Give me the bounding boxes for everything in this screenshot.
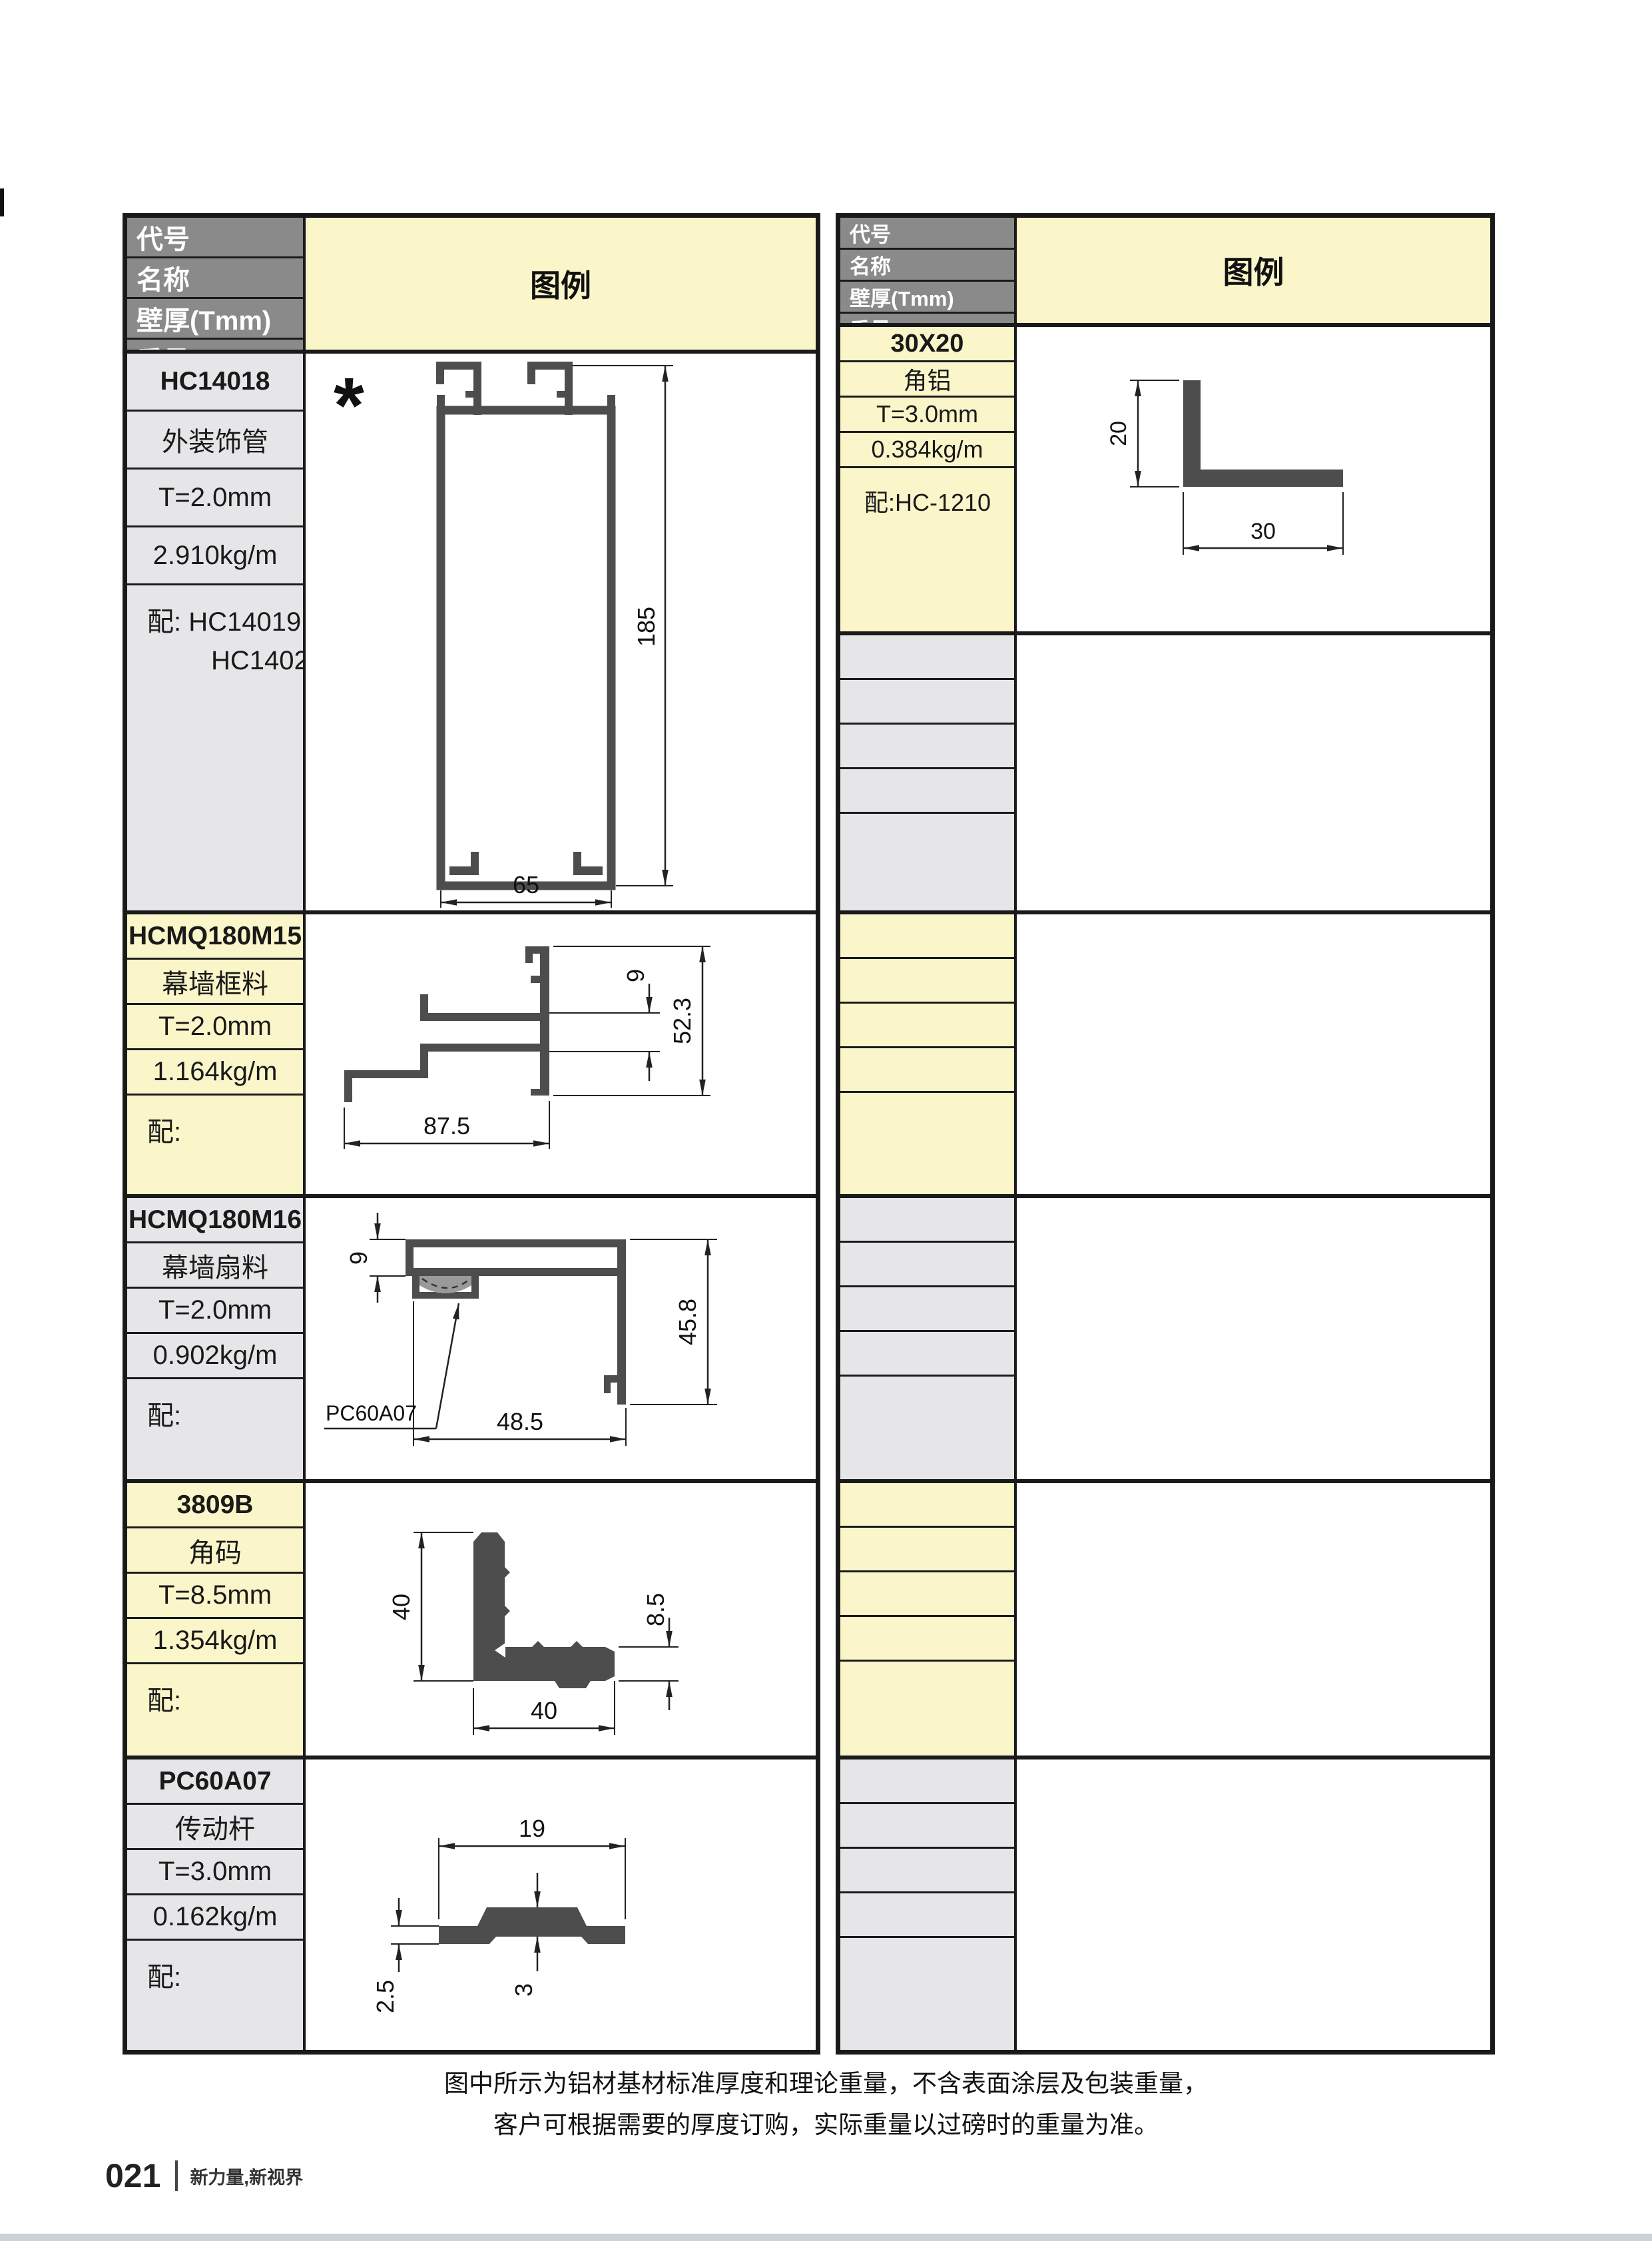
code-cell: HC14018 [127, 354, 303, 412]
code-cell [840, 1760, 1014, 1804]
diagram-cell [1017, 635, 1490, 910]
header-name: 名称 [127, 258, 303, 299]
thickness-cell: T=2.0mm [127, 1005, 303, 1050]
table-row: PC60A07 传动杆 T=3.0mm 0.162kg/m 配: [127, 1756, 816, 2050]
accessory-line: 配: [147, 1113, 181, 1151]
accessory-cell [840, 1938, 1014, 2050]
accessory-cell: 配: [127, 1096, 303, 1194]
name-cell [840, 959, 1014, 1004]
name-cell: 传动杆 [127, 1805, 303, 1850]
code-cell [840, 914, 1014, 959]
dim-label: 2.5 [372, 1980, 399, 2013]
dim-label: 52.3 [669, 998, 696, 1044]
table-row: 30X20 角铝 T=3.0mm 0.384kg/m 配:HC-1210 [840, 323, 1490, 631]
weight-cell: 0.384kg/m [840, 433, 1014, 468]
leader-label: PC60A07 [326, 1401, 417, 1425]
profile-diagram-hc14018: * [306, 354, 813, 910]
diagram-cell: 19 2.5 3 [306, 1760, 816, 2050]
profile-diagram-hcmq180m15: 87.5 52.3 9 [306, 914, 813, 1194]
note-line-2: 客户可根据需要的厚度订购，实际重量以过磅时的重量为准。 [0, 2104, 1652, 2140]
page-footer: 021 新力量,新视界 [105, 2156, 303, 2195]
name-cell [840, 680, 1014, 725]
profile-table-right: 代号 名称 壁厚(Tmm) 重量(kg/m) 配套 图例 30X20 角铝 T=… [836, 213, 1495, 2055]
table-row-empty [840, 1194, 1490, 1479]
diagram-cell [1017, 1198, 1490, 1479]
accessory-line: 配: [147, 1397, 181, 1435]
legend-title: 图例 [530, 262, 591, 306]
diagram-cell [1017, 1760, 1490, 2050]
thickness-cell [840, 1004, 1014, 1048]
code-cell: 3809B [127, 1483, 303, 1528]
diagram-cell: 87.5 52.3 9 [306, 914, 816, 1194]
catalog-page: 代号 名称 壁厚(Tmm) 重量(kg/m) 配套 图例 HC14018 外装饰… [0, 0, 1652, 2241]
table-row: 3809B 角码 T=8.5mm 1.354kg/m 配: [127, 1479, 816, 1756]
dim-label: 48.5 [497, 1408, 543, 1435]
weight-cell: 2.910kg/m [127, 527, 303, 585]
bottom-strip [0, 2234, 1652, 2241]
weight-cell [840, 1332, 1014, 1377]
table-row-empty [840, 631, 1490, 910]
dim-label: 65 [513, 871, 539, 898]
code-cell [840, 1483, 1014, 1528]
thickness-cell [840, 1287, 1014, 1332]
header-code: 代号 [840, 218, 1014, 250]
header-thickness: 壁厚(Tmm) [127, 299, 303, 340]
dim-label: 19 [519, 1815, 545, 1842]
accessory-cell: 配: [127, 1379, 303, 1479]
table-row: HCMQ180M16 幕墙扇料 T=2.0mm 0.902kg/m 配: [127, 1194, 816, 1479]
weight-cell [840, 1893, 1014, 1938]
table-row-empty [840, 910, 1490, 1194]
name-cell [840, 1243, 1014, 1287]
footer-divider [175, 2160, 178, 2191]
legend-title: 图例 [1223, 248, 1284, 292]
weight-cell: 1.164kg/m [127, 1050, 303, 1096]
thickness-cell: T=2.0mm [127, 1289, 303, 1334]
accessory-cell: 配:HC-1210 [840, 468, 1014, 631]
table-row: HCMQ180M15 幕墙框料 T=2.0mm 1.164kg/m 配: [127, 910, 816, 1194]
accessory-cell: 配: [127, 1664, 303, 1756]
accessory-line: 配: HC14019 [147, 603, 301, 641]
code-cell [840, 1198, 1014, 1243]
dim-label: 30 [1250, 519, 1276, 544]
weight-cell [840, 1617, 1014, 1662]
code-cell: PC60A07 [127, 1760, 303, 1805]
dim-label: 40 [388, 1594, 415, 1620]
header-legend-cell: 图例 [306, 218, 816, 350]
code-cell: HCMQ180M16 [127, 1198, 303, 1243]
accessory-line: 配:HC-1210 [864, 485, 991, 520]
code-cell [840, 635, 1014, 680]
accessory-cell [840, 1093, 1014, 1194]
diagram-cell: 40 40 8.5 [306, 1483, 816, 1756]
diagram-cell: 20 30 [1017, 327, 1490, 631]
diagram-cell: 9 45.8 48.5 PC60A07 [306, 1198, 816, 1479]
profile-diagram-30x20: 20 30 [1017, 327, 1488, 631]
dim-label: 8.5 [642, 1593, 669, 1626]
weight-cell: 1.354kg/m [127, 1619, 303, 1664]
name-cell: 幕墙框料 [127, 960, 303, 1005]
thickness-cell [840, 1849, 1014, 1893]
name-cell: 幕墙扇料 [127, 1243, 303, 1289]
thickness-cell: T=3.0mm [127, 1850, 303, 1895]
profile-diagram-3809b: 40 40 8.5 [306, 1483, 813, 1756]
weight-cell: 0.902kg/m [127, 1334, 303, 1379]
name-cell: 角码 [127, 1528, 303, 1574]
name-cell: 角铝 [840, 362, 1014, 398]
table-header: 代号 名称 壁厚(Tmm) 重量(kg/m) 配套 图例 [840, 218, 1490, 323]
thickness-cell [840, 725, 1014, 769]
header-legend-cell: 图例 [1017, 218, 1490, 323]
table-row-empty [840, 1756, 1490, 2050]
dim-label: 3 [510, 1983, 537, 1997]
profile-diagram-hcmq180m16: 9 45.8 48.5 PC60A07 [306, 1198, 813, 1479]
code-cell: 30X20 [840, 327, 1014, 362]
name-cell: 外装饰管 [127, 412, 303, 470]
table-header: 代号 名称 壁厚(Tmm) 重量(kg/m) 配套 图例 [127, 218, 816, 350]
accessory-cell [840, 1662, 1014, 1756]
accessory-cell [840, 814, 1014, 910]
thickness-cell: T=8.5mm [127, 1574, 303, 1619]
name-cell [840, 1528, 1014, 1572]
diagram-cell: * [306, 354, 816, 910]
note-line-1: 图中所示为铝材基材标准厚度和理论重量，不含表面涂层及包装重量， [0, 2063, 1652, 2099]
diagram-cell [1017, 914, 1490, 1194]
header-thickness: 壁厚(Tmm) [840, 282, 1014, 314]
page-number: 021 [105, 2156, 160, 2195]
footer-slogan: 新力量,新视界 [190, 2163, 303, 2189]
accessory-line: 配: [147, 1682, 181, 1720]
name-cell [840, 1804, 1014, 1849]
dim-label: 45.8 [674, 1299, 701, 1345]
table-row: HC14018 外装饰管 T=2.0mm 2.910kg/m 配: HC1401… [127, 350, 816, 910]
dim-label: 9 [345, 1251, 372, 1265]
dim-label: 40 [531, 1697, 557, 1724]
thickness-cell: T=2.0mm [127, 470, 303, 527]
table-row-empty [840, 1479, 1490, 1756]
dim-label: 20 [1106, 421, 1131, 446]
profile-table-left: 代号 名称 壁厚(Tmm) 重量(kg/m) 配套 图例 HC14018 外装饰… [123, 213, 820, 2055]
code-cell: HCMQ180M15 [127, 914, 303, 960]
thickness-cell: T=3.0mm [840, 398, 1014, 433]
dim-label: 9 [622, 969, 649, 982]
accessory-cell [840, 1377, 1014, 1479]
accessory-cell: 配: HC14019 HC14024 [127, 585, 303, 910]
dim-label: 87.5 [423, 1112, 470, 1139]
header-name: 名称 [840, 250, 1014, 282]
asterisk-marker: * [334, 362, 364, 450]
accessory-cell: 配: [127, 1941, 303, 2050]
weight-cell [840, 769, 1014, 814]
accessory-line: 配: [147, 1958, 181, 1997]
profile-diagram-pc60a07: 19 2.5 3 [306, 1760, 813, 2050]
thickness-cell [840, 1572, 1014, 1617]
weight-cell: 0.162kg/m [127, 1895, 303, 1941]
diagram-cell [1017, 1483, 1490, 1756]
weight-cell [840, 1048, 1014, 1093]
header-code: 代号 [127, 218, 303, 258]
dim-label: 185 [633, 607, 660, 647]
page-crop-mark [0, 188, 4, 216]
